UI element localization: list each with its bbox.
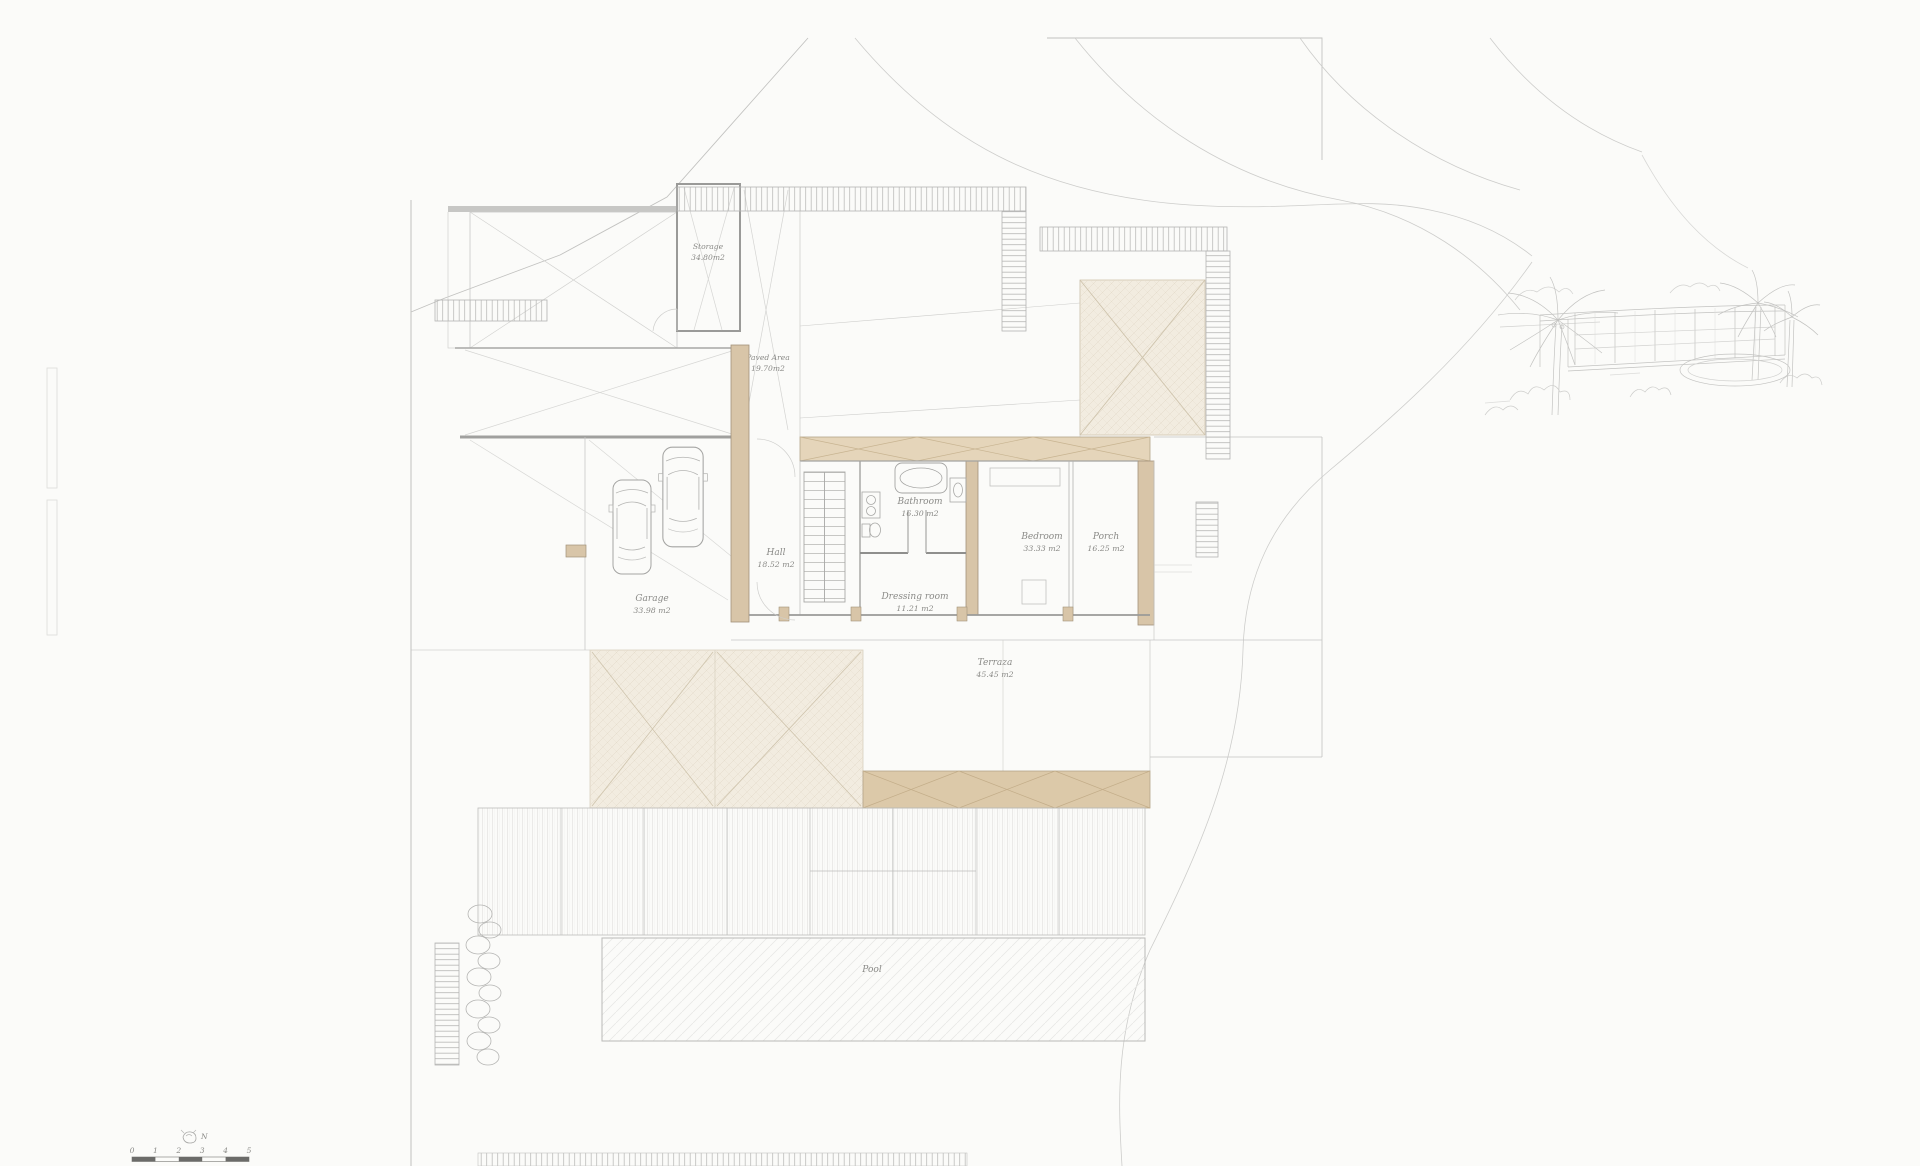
bathtub-icon bbox=[895, 463, 947, 493]
staircase bbox=[804, 472, 845, 602]
svg-text:Garage: Garage bbox=[635, 594, 668, 604]
room-label-dressing-room: Dressing room 11.21 m2 bbox=[880, 592, 948, 613]
tan-wall-west bbox=[731, 345, 749, 622]
pergola-panel-northeast bbox=[1080, 280, 1205, 435]
terrace-open bbox=[1003, 640, 1150, 771]
svg-text:16.25 m2: 16.25 m2 bbox=[1087, 544, 1124, 553]
room-label-paved-area: Paved Area 19.70m2 bbox=[745, 353, 790, 373]
deck-edge-hatch bbox=[478, 1153, 967, 1166]
svg-text:18.52 m2: 18.52 m2 bbox=[757, 560, 794, 569]
car-icon bbox=[609, 480, 655, 574]
room-label-pool: Pool bbox=[861, 965, 882, 975]
svg-text:5: 5 bbox=[247, 1146, 252, 1155]
svg-text:16.30 m2: 16.30 m2 bbox=[901, 509, 938, 518]
scale-bar: 0 1 2 3 4 5 bbox=[130, 1146, 252, 1162]
terrace-cream-hatch bbox=[590, 650, 863, 808]
room-label-hall: Hall 18.52 m2 bbox=[757, 548, 794, 569]
svg-text:Dressing room: Dressing room bbox=[880, 592, 948, 602]
room-label-garage: Garage 33.98 m2 bbox=[633, 594, 670, 615]
wood-deck bbox=[478, 808, 1145, 935]
svg-text:1: 1 bbox=[153, 1146, 158, 1155]
pool: Pool bbox=[602, 938, 1145, 1041]
svg-text:Bedroom: Bedroom bbox=[1020, 532, 1062, 542]
palm-tree-icon bbox=[1498, 277, 1618, 415]
upper-terrace-lines bbox=[800, 280, 1080, 437]
villa-sketch bbox=[1485, 270, 1822, 415]
svg-text:Terraza: Terraza bbox=[978, 658, 1013, 668]
toilet-icon bbox=[862, 523, 881, 537]
toilet-icon bbox=[950, 478, 966, 502]
svg-text:34.80m2: 34.80m2 bbox=[691, 253, 725, 262]
sink-icon bbox=[862, 492, 880, 518]
svg-text:33.98 m2: 33.98 m2 bbox=[633, 606, 670, 615]
paved-area bbox=[744, 188, 800, 437]
floor-plan-page: Storage 34.80m2 Paved Area 19.70m2 Garag… bbox=[0, 0, 1920, 1166]
room-label-bedroom: Bedroom 33.33 m2 bbox=[1020, 532, 1062, 553]
svg-text:Hall: Hall bbox=[766, 548, 786, 558]
svg-text:0: 0 bbox=[130, 1146, 135, 1155]
svg-text:19.70m2: 19.70m2 bbox=[751, 364, 785, 373]
svg-text:33.33 m2: 33.33 m2 bbox=[1023, 544, 1060, 553]
tan-beam-top bbox=[800, 437, 1150, 461]
tan-beam-bottom bbox=[863, 771, 1150, 808]
svg-text:Porch: Porch bbox=[1092, 532, 1119, 542]
floor-plan-canvas: Storage 34.80m2 Paved Area 19.70m2 Garag… bbox=[0, 0, 1920, 1166]
room-label-bathroom: Bathroom 16.30 m2 bbox=[896, 497, 942, 518]
svg-text:3: 3 bbox=[200, 1146, 205, 1155]
tan-wall-mid bbox=[966, 461, 978, 615]
room-label-porch: Porch 16.25 m2 bbox=[1087, 532, 1124, 553]
svg-text:45.45 m2: 45.45 m2 bbox=[975, 670, 1013, 679]
north-label: N bbox=[200, 1132, 208, 1141]
sketch-pool bbox=[1680, 354, 1790, 386]
tan-wall-east bbox=[1138, 461, 1154, 625]
svg-text:4: 4 bbox=[222, 1146, 228, 1155]
car-icon bbox=[659, 447, 708, 547]
room-label-terrace: Terraza 45.45 m2 bbox=[975, 658, 1013, 679]
svg-text:Paved Area: Paved Area bbox=[745, 353, 790, 362]
svg-text:11.21 m2: 11.21 m2 bbox=[896, 604, 933, 613]
svg-text:Bathroom: Bathroom bbox=[896, 497, 942, 507]
svg-text:2: 2 bbox=[175, 1146, 181, 1155]
svg-text:Storage: Storage bbox=[693, 242, 724, 251]
north-arrow: N bbox=[181, 1130, 208, 1143]
retaining-wall-hatch-left bbox=[435, 300, 547, 321]
